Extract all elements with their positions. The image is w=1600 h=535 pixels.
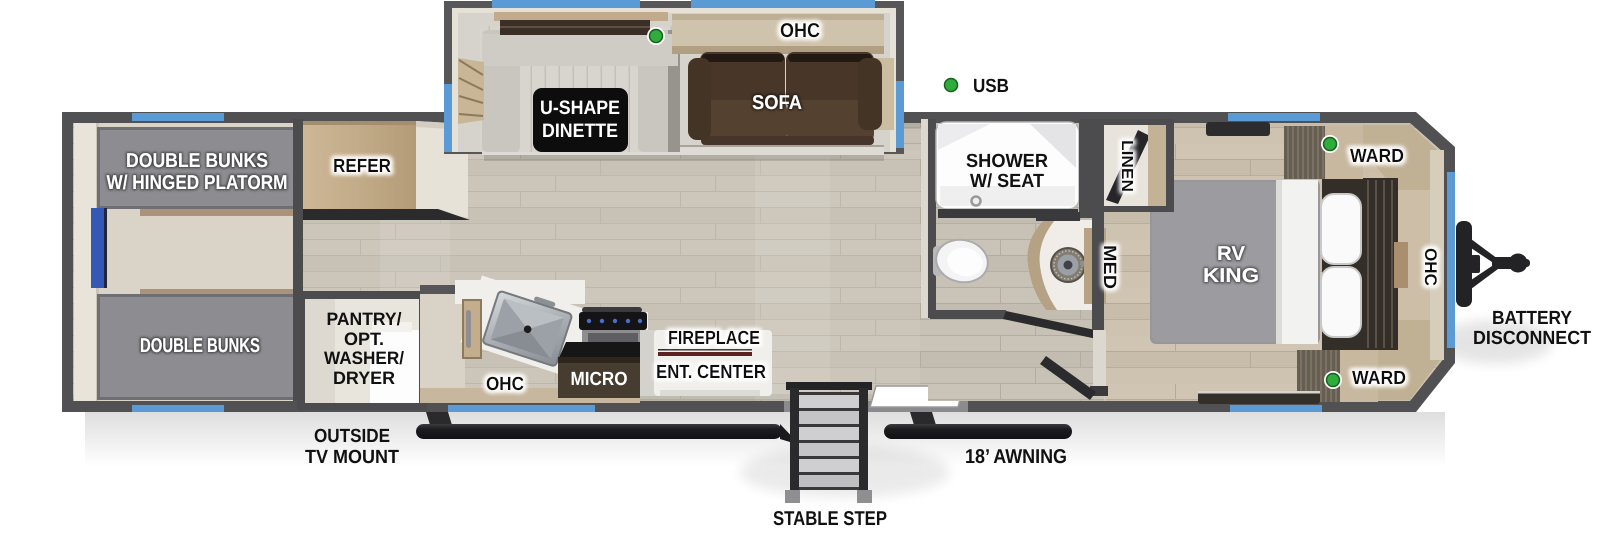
svg-text:FIREPLACE: FIREPLACE [668,328,760,349]
svg-text:WASHER/: WASHER/ [324,348,404,368]
svg-text:ENT. CENTER: ENT. CENTER [656,362,766,383]
svg-text:SOFA: SOFA [752,92,802,114]
svg-text:OHC: OHC [1421,248,1440,286]
svg-text:DISCONNECT: DISCONNECT [1473,328,1591,349]
svg-text:OHC: OHC [486,374,524,395]
svg-text:OPT.: OPT. [344,329,384,349]
svg-text:DOUBLE BUNKS: DOUBLE BUNKS [140,335,260,357]
svg-text:BATTERY: BATTERY [1492,308,1572,329]
svg-text:OHC: OHC [780,20,820,42]
svg-text:KING: KING [1203,265,1259,287]
svg-text:PANTRY/: PANTRY/ [327,309,402,329]
svg-text:W/ HINGED PLATORM: W/ HINGED PLATORM [107,172,288,194]
svg-text:DINETTE: DINETTE [542,120,618,142]
svg-text:SHOWER: SHOWER [966,151,1048,172]
svg-text:W/ SEAT: W/ SEAT [970,171,1044,192]
svg-text:WARD: WARD [1352,368,1406,389]
svg-text:TV MOUNT: TV MOUNT [305,447,399,468]
svg-text:LINEN: LINEN [1118,140,1135,192]
svg-text:U-SHAPE: U-SHAPE [540,97,620,119]
svg-text:REFER: REFER [333,156,391,177]
svg-text:DOUBLE BUNKS: DOUBLE BUNKS [126,150,268,172]
svg-text:18’ AWNING: 18’ AWNING [965,446,1067,468]
svg-text:MED: MED [1100,245,1120,289]
svg-text:RV: RV [1217,243,1246,265]
svg-text:OUTSIDE: OUTSIDE [314,426,390,447]
svg-text:MICRO: MICRO [571,369,628,390]
svg-text:DRYER: DRYER [333,368,395,388]
svg-text:WARD: WARD [1350,146,1404,167]
svg-text:USB: USB [973,76,1009,97]
svg-text:STABLE STEP: STABLE STEP [773,508,887,530]
